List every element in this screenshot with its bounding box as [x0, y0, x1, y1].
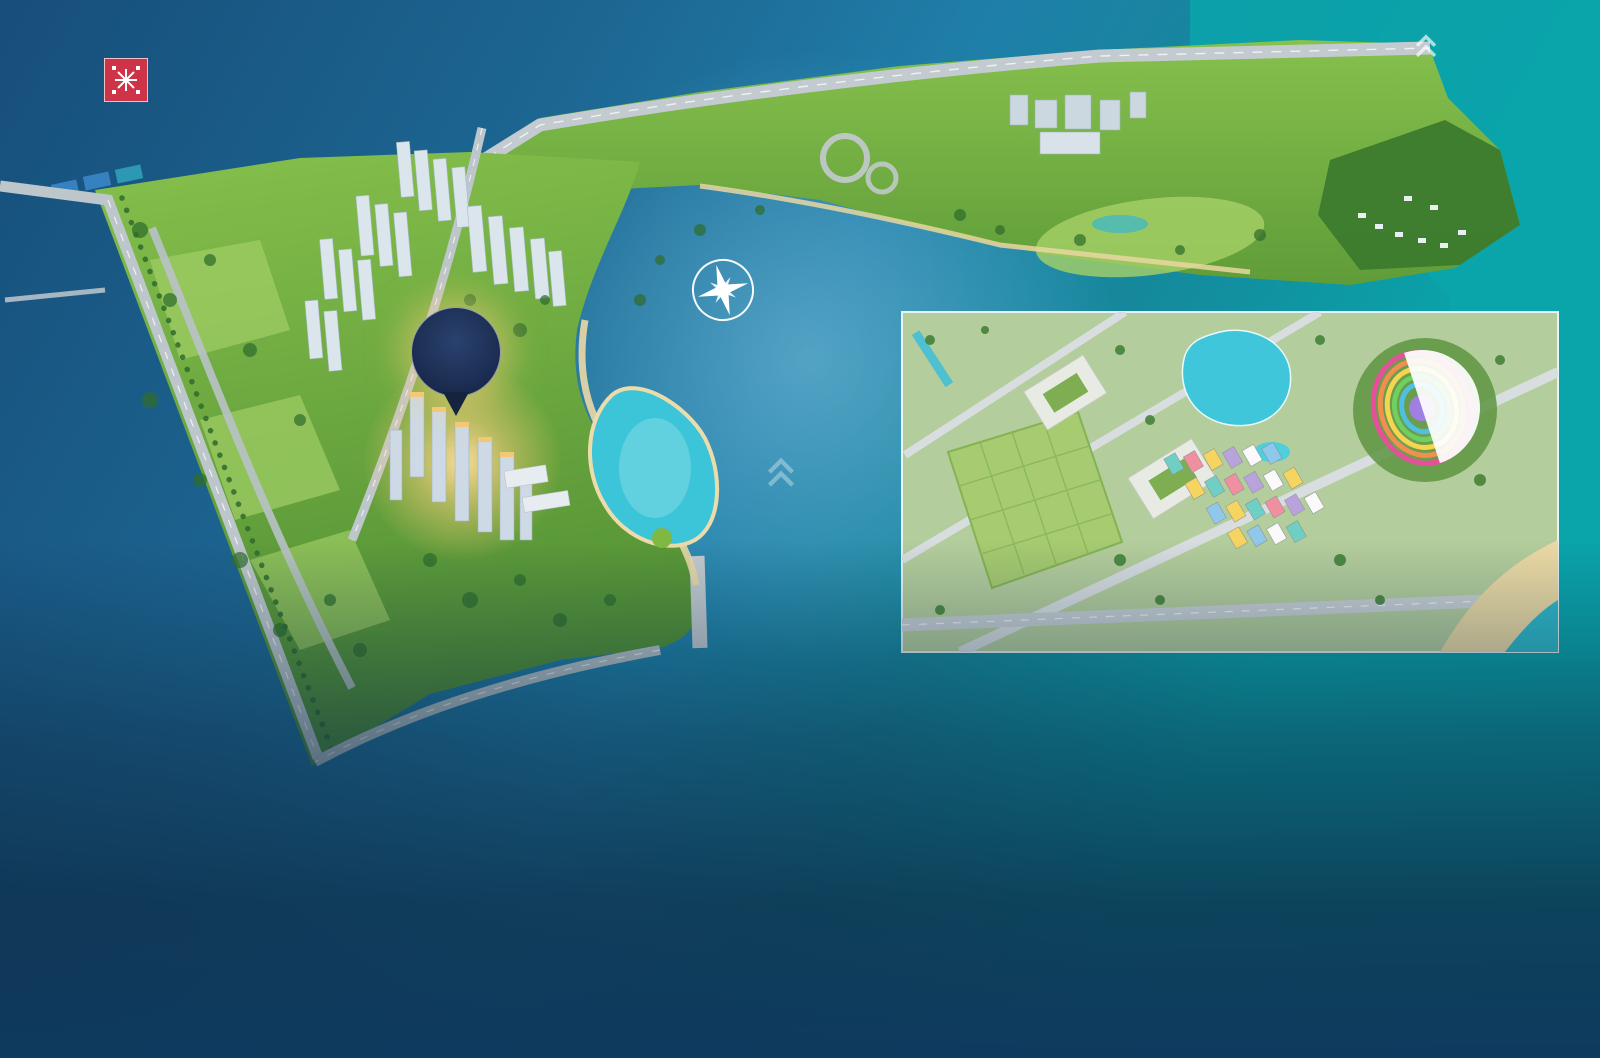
imperia-project-pin: [411, 307, 501, 397]
batdongsan-chevron-icon: [1408, 30, 1444, 66]
mikgroup-mark-icon: [104, 58, 148, 102]
developer-logo: [104, 58, 160, 102]
batdongsan-chevron-icon: [758, 452, 804, 498]
watermark: [758, 452, 812, 498]
masterplan-poster: [0, 0, 1600, 1058]
site-brand-logo: [1408, 30, 1452, 66]
map-render: [0, 0, 1600, 1058]
bottom-shade: [0, 0, 1600, 1058]
